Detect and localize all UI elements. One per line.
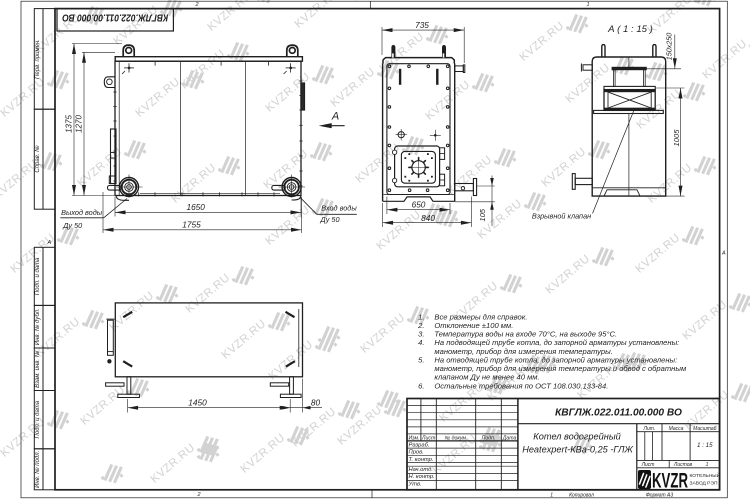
svg-text:Heatexpert-КВа-0,25 -ГЛЖ: Heatexpert-КВа-0,25 -ГЛЖ	[522, 444, 633, 454]
svg-text:Масштаб: Масштаб	[693, 426, 717, 432]
svg-text:Дата: Дата	[502, 435, 517, 441]
svg-text:1650: 1650	[186, 202, 205, 212]
svg-text:Утв.: Утв.	[408, 481, 422, 487]
svg-text:150x250: 150x250	[664, 33, 673, 61]
svg-text:№ докум.: № докум.	[445, 435, 468, 441]
svg-text:ЗАВОД РЭП: ЗАВОД РЭП	[690, 481, 718, 487]
svg-text:1270: 1270	[74, 115, 83, 133]
svg-text:Инв. № дубл.: Инв. № дубл.	[34, 308, 41, 345]
svg-text:4.: 4.	[418, 338, 424, 347]
svg-text:КВГЛЖ.022.011.00.000 ВО: КВГЛЖ.022.011.00.000 ВО	[62, 12, 168, 23]
svg-text:2: 2	[194, 2, 198, 8]
svg-text:735: 735	[415, 20, 429, 30]
svg-text:1 : 15: 1 : 15	[697, 442, 713, 449]
svg-text:Разраб.: Разраб.	[409, 442, 430, 448]
svg-text:Нач.отд.: Нач.отд.	[409, 467, 433, 473]
svg-text:Листов: Листов	[673, 462, 693, 468]
svg-text:Подп.: Подп.	[482, 435, 496, 441]
svg-text:Взрывной клапан: Взрывной клапан	[532, 211, 591, 220]
svg-text:2: 2	[196, 492, 200, 498]
svg-text:Вход воды: Вход воды	[321, 204, 357, 213]
svg-text:А ( 1 : 15 ): А ( 1 : 15 )	[607, 24, 653, 35]
svg-text:Ду 50: Ду 50	[319, 215, 339, 224]
svg-text:КВГЛЖ.022.011.00.000 ВО: КВГЛЖ.022.011.00.000 ВО	[555, 408, 682, 419]
svg-text:А: А	[46, 240, 51, 246]
svg-text:Взам. инв. №: Взам. инв. №	[34, 350, 41, 388]
svg-text:1: 1	[586, 2, 589, 8]
svg-text:А: А	[331, 111, 339, 123]
svg-text:Масса: Масса	[669, 426, 684, 432]
svg-text:1: 1	[706, 462, 709, 468]
svg-text:6.: 6.	[418, 381, 424, 390]
svg-text:Подп. и дата: Подп. и дата	[35, 257, 41, 295]
svg-text:Справ. №: Справ. №	[34, 145, 41, 173]
svg-text:Пров.: Пров.	[409, 450, 424, 456]
svg-text:1755: 1755	[182, 220, 201, 230]
svg-text:Изм.: Изм.	[408, 435, 419, 441]
svg-text:А: А	[721, 251, 726, 257]
svg-text:1: 1	[550, 493, 553, 499]
svg-text:Т. контр.: Т. контр.	[409, 457, 434, 463]
svg-text:Лист: Лист	[641, 462, 655, 468]
svg-text:1005: 1005	[672, 129, 681, 147]
svg-text:1450: 1450	[188, 398, 207, 408]
svg-text:Остальные требования по ОСТ 10: Остальные требования по ОСТ 108.030.133-…	[434, 381, 608, 390]
svg-text:Копировал: Копировал	[569, 493, 594, 499]
svg-text:Н. контр.: Н. контр.	[409, 474, 435, 480]
svg-text:840: 840	[421, 213, 435, 223]
svg-text:Формат А3: Формат А3	[646, 493, 674, 499]
svg-text:5.: 5.	[418, 355, 424, 364]
svg-text:1375: 1375	[64, 115, 73, 133]
svg-text:Инв. № подл.: Инв. № подл.	[34, 451, 41, 488]
svg-text:650: 650	[412, 200, 426, 210]
svg-text:105: 105	[478, 208, 487, 221]
svg-text:Лит.: Лит.	[643, 426, 656, 432]
svg-text:Подп. и дата: Подп. и дата	[35, 400, 41, 438]
svg-text:Лист: Лист	[421, 435, 436, 441]
svg-text:Перв. примен.: Перв. примен.	[35, 39, 41, 79]
svg-text:80: 80	[311, 398, 321, 408]
svg-text:Ду 50: Ду 50	[62, 221, 82, 230]
svg-text:Котел водогрейный: Котел водогрейный	[533, 432, 620, 442]
svg-text:Выход воды: Выход воды	[61, 208, 103, 217]
svg-text:KVZR: KVZR	[652, 470, 688, 493]
